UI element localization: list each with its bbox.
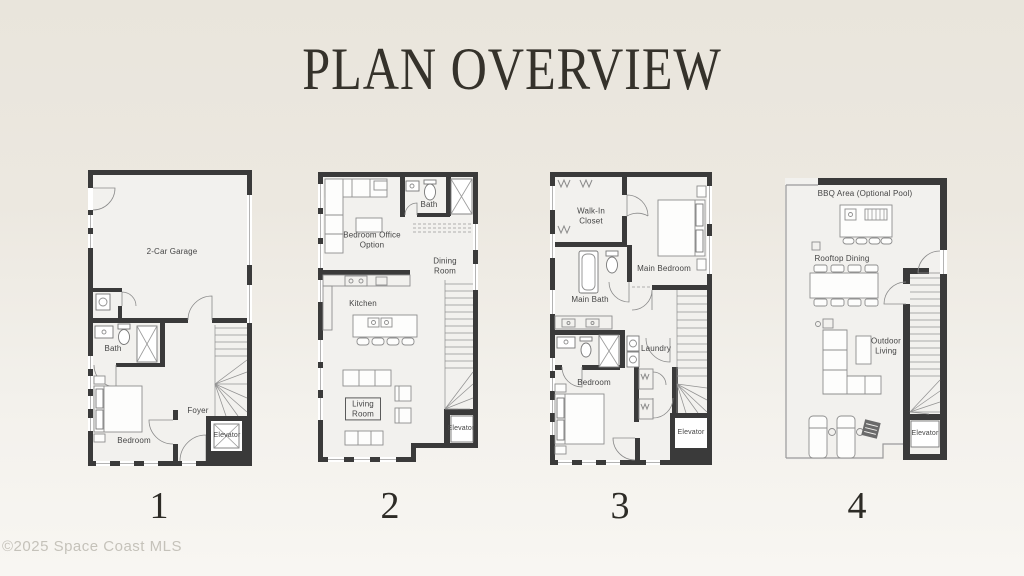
bath-sink [557,337,575,348]
bbq-island [840,205,892,244]
label-main-bath: Main Bath [571,295,608,305]
label-elevator: Elevator [912,430,939,438]
bathtub [579,251,598,293]
lounger [809,416,827,458]
label-garage: 2-Car Garage [147,247,198,257]
label-living-room: Living Room [345,397,381,420]
plan-number-4: 4 [848,484,867,528]
floor-plan-4: BBQ Area (Optional Pool) Rooftop Dining … [785,178,947,460]
label-bbq-area: BBQ Area (Optional Pool) [818,189,913,199]
label-outdoor-living: Outdoor Living [866,336,906,355]
floor-plan-3: Walk-In Closet Main Bedroom Main Bath La… [550,172,712,465]
terrace-notch [883,446,903,460]
label-dining-room: Dining Room [427,256,463,275]
toilet [118,324,130,345]
elevator [670,413,712,465]
label-elevator: Elevator [678,429,705,437]
second-sofa [345,431,383,445]
label-foyer: Foyer [187,406,208,416]
label-walk-in-closet: Walk-In Closet [569,206,613,225]
label-elevator: Elevator [448,425,475,433]
floor-plan-1: 2-Car Garage Bath Bedroom Foyer Elevator [88,170,252,466]
dining-set [810,265,878,306]
armchair [395,386,411,401]
label-laundry: Laundry [641,344,671,354]
toilet [580,337,592,357]
shower [137,326,157,362]
label-rooftop-dining: Rooftop Dining [814,254,869,264]
closet [451,179,472,214]
windows [940,250,947,274]
plan-number-1: 1 [150,484,169,528]
label-bedroom-office: Bedroom Office Option [340,230,404,249]
bath-sink [406,181,419,191]
plan-number-2: 2 [381,484,400,528]
label-bedroom: Bedroom [117,436,151,446]
label-bath: Bath [104,344,121,354]
bed [94,376,142,442]
watermark: ©2025 Space Coast MLS [2,538,182,555]
label-main-bedroom: Main Bedroom [637,264,691,274]
label-elevator: Elevator [214,432,241,440]
label-kitchen: Kitchen [349,299,377,309]
floor-plan-2: Bedroom Office Option Bath Dining Room K… [318,172,478,462]
living-sofa [343,370,391,386]
bath-sink [95,326,113,338]
lounger [837,416,855,458]
label-bath: Bath [420,200,437,210]
office-cabinet [374,181,387,190]
armchair [395,408,411,423]
toilet [424,180,436,200]
water-heater [96,294,110,310]
bed [555,384,604,454]
shower [599,335,619,367]
label-bedroom: Bedroom [577,378,611,388]
page-title: PLAN OVERVIEW [36,39,988,99]
toilet [606,251,618,273]
plan-number-3: 3 [611,484,630,528]
